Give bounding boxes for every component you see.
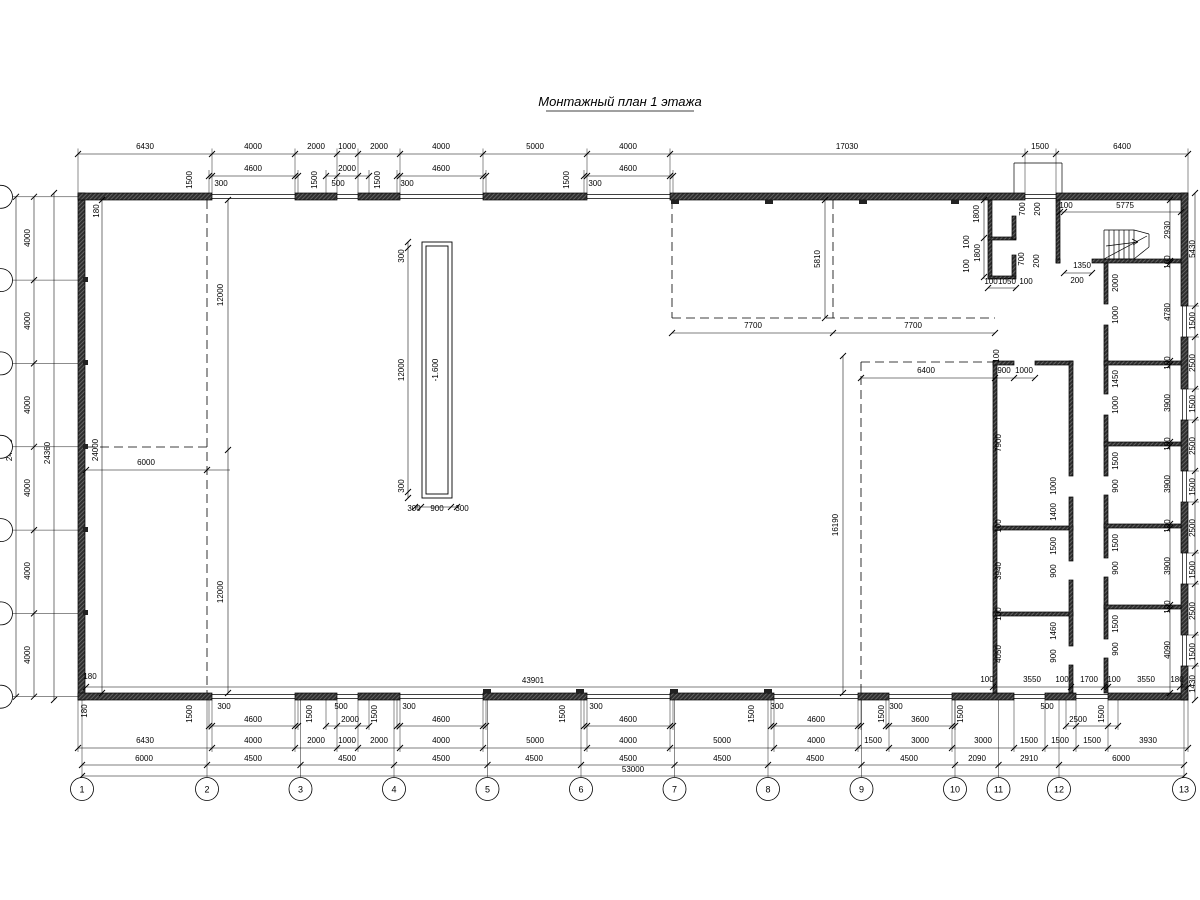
dim-label: 1500 <box>373 171 382 189</box>
dim-label: 3000 <box>911 736 929 745</box>
dim-label: 1500 <box>185 171 194 189</box>
axis-number: 10 <box>950 785 960 795</box>
axis-number: 8 <box>765 785 770 795</box>
axis-number: 2 <box>204 785 209 795</box>
axis-number: 13 <box>1179 785 1189 795</box>
dim-label: 4500 <box>900 754 918 763</box>
axis-bubble <box>0 185 13 208</box>
dim-label: 100 <box>1163 437 1172 451</box>
dim-label: 1500 <box>370 705 379 723</box>
dim-label: 4000 <box>244 736 262 745</box>
dim-label: 3000 <box>974 736 992 745</box>
dim-label: 1500 <box>1020 736 1038 745</box>
dim-label: 4000 <box>23 396 32 414</box>
dim-label: 300 <box>400 179 414 188</box>
dim-label: 100 <box>1055 675 1069 684</box>
dim-label: 3550 <box>1137 675 1155 684</box>
dim-label: 3900 <box>1163 557 1172 575</box>
dim-label: 5000 <box>526 142 544 151</box>
dim-label: 2000 <box>370 142 388 151</box>
dim-label: 900 <box>430 504 444 513</box>
dim-label: 1500 <box>1111 615 1120 633</box>
axis-number: 9 <box>859 785 864 795</box>
dim-label: 4500 <box>338 754 356 763</box>
dim-label: 1500 <box>1083 736 1101 745</box>
dim-label: 300 <box>402 702 416 711</box>
dim-label: 1000 <box>338 736 356 745</box>
extension-lines <box>11 149 1199 778</box>
dim-label: 3900 <box>1163 475 1172 493</box>
dim-label: -1.600 <box>431 358 440 381</box>
axis-number: 4 <box>391 785 396 795</box>
dim-label: 300 <box>589 702 603 711</box>
dim-label: 4780 <box>1163 303 1172 321</box>
dim-label: 5810 <box>813 250 822 268</box>
floor-plan-canvas: Монтажный план 1 этажа 64304000200010002… <box>0 0 1200 900</box>
dim-label: 900 <box>1111 642 1120 656</box>
dim-label: 1050 <box>998 277 1016 286</box>
dim-label: 4600 <box>619 715 637 724</box>
dim-label: 100 <box>984 277 998 286</box>
dim-label: 1500 <box>1051 736 1069 745</box>
dim-label: 6430 <box>136 736 154 745</box>
drawing-sheet: Монтажный план 1 этажа 64304000200010002… <box>0 0 1200 900</box>
dim-label: 4090 <box>1163 641 1172 659</box>
dim-label: 300 <box>889 702 903 711</box>
dim-label: 2000 <box>338 164 356 173</box>
dim-label: 100 <box>994 519 1003 533</box>
dim-label: 100 <box>980 675 994 684</box>
dim-label: 100 <box>1107 675 1121 684</box>
dim-label: 500 <box>1040 702 1054 711</box>
dim-label: 4500 <box>525 754 543 763</box>
axis-number: 11 <box>994 785 1003 795</box>
axis-number: 5 <box>485 785 490 795</box>
dim-label: 300 <box>214 179 228 188</box>
dim-label: 300 <box>397 479 406 493</box>
axis-number: 6 <box>578 785 583 795</box>
axis-bubble <box>0 269 13 292</box>
dim-label: 5775 <box>1116 201 1134 210</box>
dim-label: 53000 <box>622 765 645 774</box>
dim-label: 2000 <box>341 715 359 724</box>
dim-label: 1430 <box>1188 675 1197 693</box>
dim-label: 5000 <box>713 736 731 745</box>
dim-label: 100 <box>992 349 1001 363</box>
dim-label: 4500 <box>619 754 637 763</box>
dim-label: 7700 <box>744 321 762 330</box>
axis-bubble <box>0 519 13 542</box>
dim-label: 4050 <box>994 645 1003 663</box>
dim-label: 1500 <box>185 705 194 723</box>
dim-label: 100 <box>1059 201 1073 210</box>
dim-label: 4000 <box>23 562 32 580</box>
dim-label: 1500 <box>1097 705 1106 723</box>
dim-label: 3940 <box>994 562 1003 580</box>
dim-label: 7900 <box>994 434 1003 452</box>
axis-bubble <box>0 685 13 708</box>
dim-label: 2000 <box>307 142 325 151</box>
axis-number: 3 <box>298 785 303 795</box>
dim-label: 6000 <box>1112 754 1130 763</box>
dim-label: 6000 <box>135 754 153 763</box>
axis-number: 7 <box>672 785 677 795</box>
dim-label: 5430 <box>1188 240 1197 258</box>
dim-label: 300 <box>588 179 602 188</box>
dim-label: 900 <box>1111 479 1120 493</box>
dim-label: 4600 <box>432 715 450 724</box>
dim-label: 2500 <box>1069 715 1087 724</box>
dim-label: 900 <box>1049 649 1058 663</box>
dim-label: 100 <box>962 259 971 273</box>
dim-label: 200 <box>1033 202 1042 216</box>
window-lines <box>212 195 1186 699</box>
dim-label: 100 <box>1019 277 1033 286</box>
dim-label: 3600 <box>911 715 929 724</box>
axis-bubble <box>0 352 13 375</box>
setting-out-dashed-lines <box>86 200 995 693</box>
dimension-labels: 6430400020001000200040005000400017030150… <box>5 142 1197 774</box>
dim-label: 1000 <box>1015 366 1033 375</box>
dim-label: 4500 <box>713 754 731 763</box>
axis-number: 1 <box>79 785 84 795</box>
dim-label: 4000 <box>619 736 637 745</box>
dim-label: 6400 <box>1113 142 1131 151</box>
dim-label: 6430 <box>136 142 154 151</box>
dim-label: 100 <box>994 607 1003 621</box>
dim-label: 900 <box>1111 561 1120 575</box>
dim-label: 1500 <box>1031 142 1049 151</box>
dim-label: 2500 <box>1188 437 1197 455</box>
dim-label: 1500 <box>747 705 756 723</box>
dim-label: 4600 <box>244 715 262 724</box>
dim-label: 12000 <box>216 283 225 306</box>
dim-label: 2090 <box>968 754 986 763</box>
dim-label: 1800 <box>973 244 982 262</box>
dim-label: 4500 <box>806 754 824 763</box>
dim-label: 200 <box>1070 276 1084 285</box>
dim-label: 300 <box>455 504 469 513</box>
dim-label: 180 <box>83 672 97 681</box>
dim-label: 3550 <box>1023 675 1041 684</box>
dim-label: 300 <box>217 702 231 711</box>
dim-label: 4600 <box>807 715 825 724</box>
dim-label: 1500 <box>1188 478 1197 496</box>
dim-label: 2910 <box>1020 754 1038 763</box>
dim-label: 5000 <box>526 736 544 745</box>
dim-label: 180 <box>1170 675 1184 684</box>
dim-label: 700 <box>1018 202 1027 216</box>
dim-label: 1500 <box>558 705 567 723</box>
dim-label: 300 <box>397 249 406 263</box>
walls-layer <box>78 193 1188 700</box>
dim-label: 4000 <box>432 736 450 745</box>
dim-label: 12000 <box>216 580 225 603</box>
dim-label: 1500 <box>1111 452 1120 470</box>
dim-label: 4000 <box>807 736 825 745</box>
dim-label: 100 <box>1163 255 1172 269</box>
dim-label: 1500 <box>1111 534 1120 552</box>
dim-label: 4500 <box>432 754 450 763</box>
dim-label: 24000 <box>91 438 100 461</box>
dim-label: 17030 <box>836 142 859 151</box>
dim-label: 4600 <box>432 164 450 173</box>
dim-label: 43901 <box>522 676 545 685</box>
dimension-lines <box>13 151 1198 779</box>
dim-label: 4000 <box>244 142 262 151</box>
dim-label: 2000 <box>1111 274 1120 292</box>
dim-label: 180 <box>92 204 101 218</box>
dim-label: 180 <box>80 704 89 718</box>
axis-number: 12 <box>1054 785 1064 795</box>
dim-label: 2930 <box>1163 221 1172 239</box>
dim-label: 1460 <box>1049 622 1058 640</box>
dim-label: 4600 <box>619 164 637 173</box>
dim-label: 16190 <box>831 513 840 536</box>
dim-label: 6400 <box>917 366 935 375</box>
dim-label: 1400 <box>1049 503 1058 521</box>
dim-label: 4000 <box>23 646 32 664</box>
axis-bubble <box>0 602 13 625</box>
dim-label: 1350 <box>1073 261 1091 270</box>
dim-label: 100 <box>1163 519 1172 533</box>
dim-label: 4000 <box>23 229 32 247</box>
dim-label: 1450 <box>1111 370 1120 388</box>
dim-label: 12000 <box>397 358 406 381</box>
dim-label: 2500 <box>1188 602 1197 620</box>
dim-label: 1500 <box>305 705 314 723</box>
dim-label: 1000 <box>1111 306 1120 324</box>
dim-label: 4000 <box>432 142 450 151</box>
dim-label: 200 <box>1032 254 1041 268</box>
dim-label: 1500 <box>956 705 965 723</box>
dim-label: 1000 <box>338 142 356 151</box>
dim-label: 2500 <box>1188 354 1197 372</box>
dim-label: 1500 <box>877 705 886 723</box>
dim-label: 1500 <box>310 171 319 189</box>
dim-label: 7700 <box>904 321 922 330</box>
dim-label: 1700 <box>1080 675 1098 684</box>
dim-label: 1800 <box>972 205 981 223</box>
dim-label: 1500 <box>562 171 571 189</box>
dim-label: 1500 <box>1188 312 1197 330</box>
dim-label: 2500 <box>1188 519 1197 537</box>
dim-label: 3900 <box>1163 394 1172 412</box>
sheet-title: Монтажный план 1 этажа <box>538 94 701 109</box>
dim-label: 4500 <box>244 754 262 763</box>
dim-label: 2000 <box>307 736 325 745</box>
dim-label: 500 <box>331 179 345 188</box>
dim-label: 1500 <box>864 736 882 745</box>
dim-label: 300 <box>770 702 784 711</box>
dim-label: 4600 <box>244 164 262 173</box>
dim-label: 24360 <box>43 441 52 464</box>
dim-label: 100 <box>1163 356 1172 370</box>
dim-label: 300 <box>407 504 421 513</box>
dim-label: 4000 <box>23 479 32 497</box>
dim-label: 4000 <box>619 142 637 151</box>
dim-label: 6000 <box>137 458 155 467</box>
dim-label: 100 <box>1163 600 1172 614</box>
dim-label: 900 <box>1049 564 1058 578</box>
dim-label: 1500 <box>1188 561 1197 579</box>
dim-label: 1500 <box>1188 395 1197 413</box>
dim-label: 1000 <box>1111 396 1120 414</box>
dim-label: 500 <box>334 702 348 711</box>
dim-label: 2000 <box>370 736 388 745</box>
dim-label: 1500 <box>1188 643 1197 661</box>
dim-label: 700 <box>1017 252 1026 266</box>
dim-label: 900 <box>997 366 1011 375</box>
dim-label: 4000 <box>23 312 32 330</box>
dim-label: 1500 <box>1049 537 1058 555</box>
dim-label: 1000 <box>1049 477 1058 495</box>
dim-label: 3930 <box>1139 736 1157 745</box>
dim-label: 100 <box>962 235 971 249</box>
